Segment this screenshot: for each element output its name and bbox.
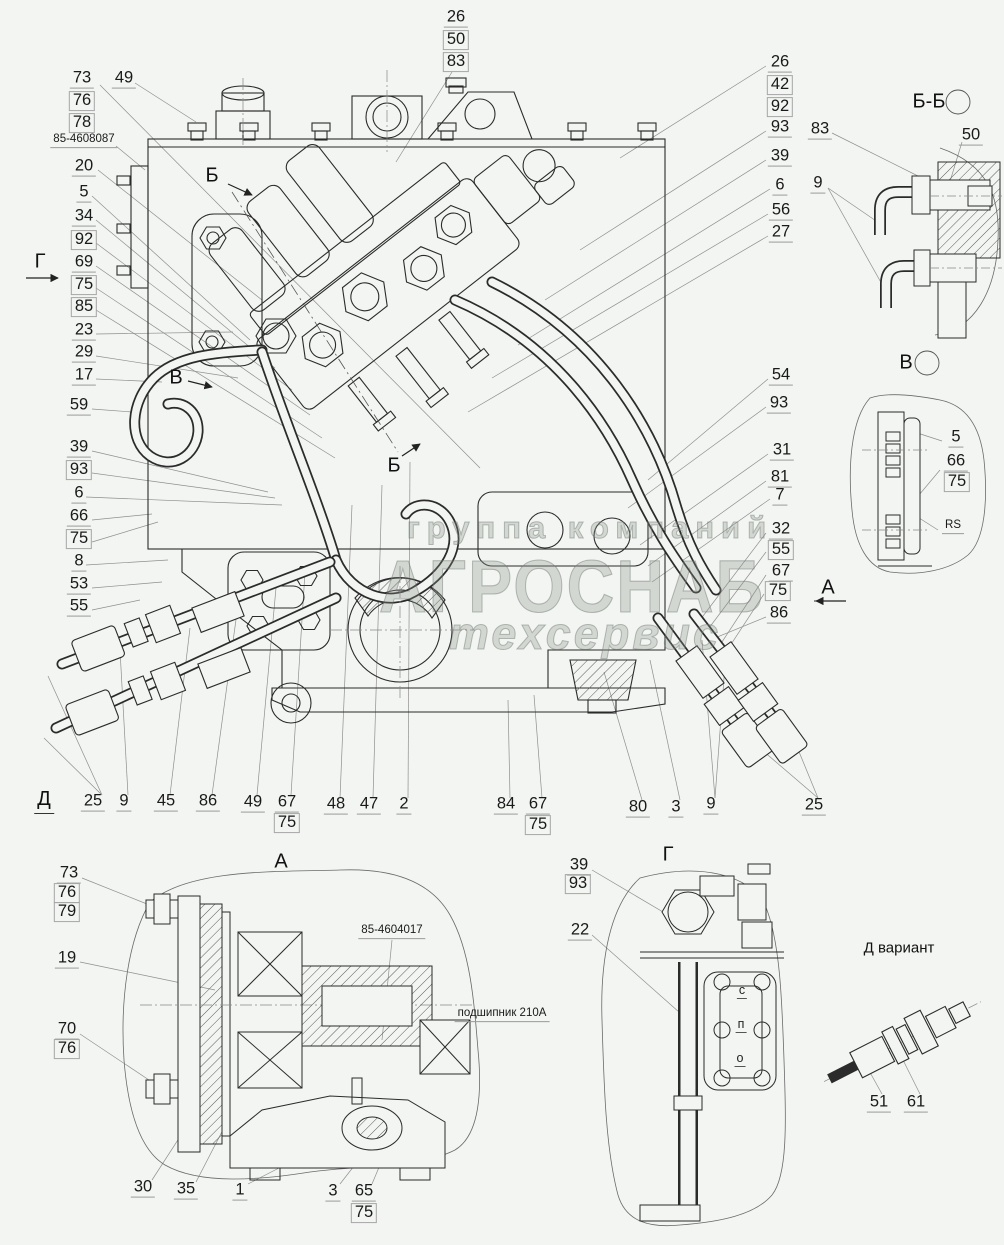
- callout-93: 93: [768, 119, 792, 138]
- callout-67: 67: [275, 794, 299, 813]
- callout-55: 55: [67, 598, 91, 617]
- callout-27: 27: [769, 224, 793, 243]
- callout-1: 1: [232, 1182, 247, 1201]
- callout-65: 65: [352, 1183, 376, 1202]
- sight-letter-о: о: [735, 1051, 746, 1067]
- callout-75: 75: [525, 815, 551, 835]
- callout-92: 92: [71, 230, 97, 250]
- callout-5: 5: [948, 429, 963, 448]
- view-label-А: А: [821, 577, 834, 600]
- callout-70: 70: [55, 1021, 79, 1040]
- callout-75: 75: [71, 275, 97, 295]
- callout-75: 75: [274, 813, 300, 833]
- callout-19: 19: [55, 950, 79, 969]
- callout-RS: RS: [942, 520, 964, 534]
- callout-17: 17: [72, 367, 96, 386]
- callout-61: 61: [904, 1094, 928, 1113]
- callout-47: 47: [357, 796, 381, 815]
- callout-55: 55: [768, 540, 794, 560]
- callout-73: 73: [57, 865, 81, 884]
- callout-84: 84: [494, 796, 518, 815]
- callout-подшипник-210А: подшипник 210А: [455, 1008, 550, 1022]
- callout-86: 86: [767, 605, 791, 624]
- view-label-Б: Б: [205, 165, 218, 188]
- view-label-В: В: [899, 352, 912, 375]
- view-label-Б: Б: [387, 455, 400, 478]
- callout-48: 48: [324, 796, 348, 815]
- callout-20: 20: [72, 158, 96, 177]
- callout-49: 49: [112, 70, 136, 89]
- callout-9: 9: [810, 175, 825, 194]
- callout-29: 29: [72, 344, 96, 363]
- callout-45: 45: [154, 793, 178, 812]
- callout-59: 59: [67, 397, 91, 416]
- callout-78: 78: [69, 113, 95, 133]
- callout-85: 85: [71, 297, 97, 317]
- callout-32: 32: [769, 521, 793, 540]
- callout-30: 30: [131, 1179, 155, 1198]
- callout-80: 80: [626, 799, 650, 818]
- callout-31: 31: [770, 442, 794, 461]
- callout-76: 76: [54, 883, 80, 903]
- callout-53: 53: [67, 576, 91, 595]
- drawing-sheet: группа компаний АГРОСНАБ техсервис 73767…: [0, 0, 1004, 1245]
- sight-letter-п: п: [736, 1017, 747, 1033]
- callout-66: 66: [67, 508, 91, 527]
- callout-25: 25: [81, 793, 105, 812]
- callout-93: 93: [66, 460, 92, 480]
- callout-83: 83: [808, 121, 832, 140]
- callout-2: 2: [396, 796, 411, 815]
- callout-39: 39: [768, 148, 792, 167]
- callout-79: 79: [54, 902, 80, 922]
- view-label-А: А: [274, 851, 287, 874]
- callout-9: 9: [116, 793, 131, 812]
- callout-75: 75: [66, 529, 92, 549]
- callout-93: 93: [767, 395, 791, 414]
- callout-6: 6: [71, 485, 86, 504]
- callout-92: 92: [767, 97, 793, 117]
- callout-50: 50: [959, 127, 983, 146]
- callout-34: 34: [72, 208, 96, 227]
- callout-39: 39: [567, 857, 591, 876]
- callout-76: 76: [54, 1039, 80, 1059]
- callout-85-4604017: 85-4604017: [358, 925, 425, 939]
- callout-69: 69: [72, 254, 96, 273]
- callout-73: 73: [70, 70, 94, 89]
- callout-75: 75: [944, 472, 970, 492]
- callout-81: 81: [768, 469, 792, 488]
- callout-layer: 7376784985-46080872053492697585232917593…: [0, 0, 1004, 1245]
- callout-26: 26: [444, 9, 468, 28]
- callout-8: 8: [71, 553, 86, 572]
- view-label-Д: Д: [34, 788, 54, 814]
- callout-9: 9: [703, 796, 718, 815]
- callout-22: 22: [568, 922, 592, 941]
- callout-42: 42: [767, 75, 793, 95]
- callout-76: 76: [69, 91, 95, 111]
- callout-5: 5: [76, 184, 91, 203]
- callout-26: 26: [768, 54, 792, 73]
- view-label-Д-вариант: Д вариант: [864, 940, 935, 957]
- callout-67: 67: [769, 563, 793, 582]
- view-label-Г: Г: [35, 251, 46, 274]
- callout-49: 49: [241, 794, 265, 813]
- callout-93: 93: [565, 874, 591, 894]
- callout-75: 75: [765, 581, 791, 601]
- callout-54: 54: [769, 367, 793, 386]
- callout-35: 35: [174, 1181, 198, 1200]
- callout-7: 7: [772, 487, 787, 506]
- view-label-Б-Б: Б-Б: [913, 91, 946, 114]
- callout-23: 23: [72, 322, 96, 341]
- callout-6: 6: [772, 177, 787, 196]
- callout-85-4608087: 85-4608087: [50, 134, 117, 148]
- callout-83: 83: [443, 52, 469, 72]
- callout-39: 39: [67, 439, 91, 458]
- callout-3: 3: [668, 799, 683, 818]
- callout-86: 86: [196, 793, 220, 812]
- callout-50: 50: [443, 30, 469, 50]
- callout-75: 75: [351, 1203, 377, 1223]
- callout-66: 66: [944, 453, 968, 472]
- callout-25: 25: [802, 797, 826, 816]
- view-label-Г: Г: [663, 844, 674, 867]
- view-label-В: В: [169, 367, 182, 390]
- callout-67: 67: [526, 796, 550, 815]
- callout-3: 3: [325, 1183, 340, 1202]
- callout-56: 56: [769, 202, 793, 221]
- callout-51: 51: [867, 1094, 891, 1113]
- sight-letter-с: с: [737, 983, 747, 999]
